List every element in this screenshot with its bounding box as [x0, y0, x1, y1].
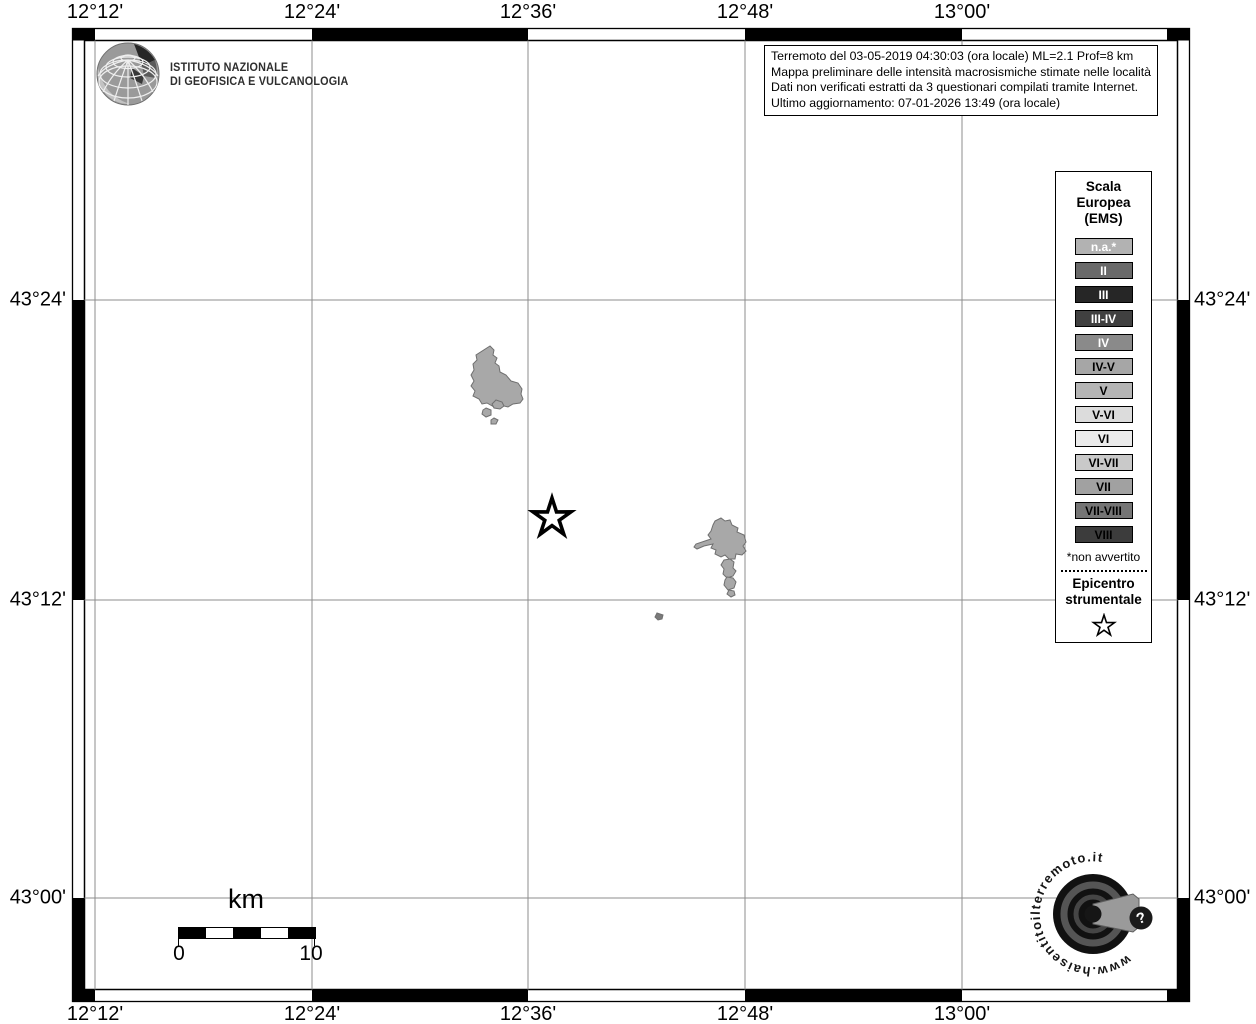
map-frame [73, 29, 1190, 1002]
top-axis-label: 12°36' [500, 1, 556, 24]
right-axis-label: 43°24' [1194, 289, 1250, 312]
left-axis-label: 43°00' [6, 887, 66, 910]
legend-title-line: Europea [1056, 195, 1151, 211]
legend-item-viii: VIII [1075, 526, 1133, 543]
macroseismic-map: 12°12' 12°24' 12°36' 12°48' 13°00' 12°12… [0, 0, 1256, 1024]
lake-shapes [471, 346, 746, 620]
ingv-logo: ISTITUTO NAZIONALE DI GEOFISICA E VULCAN… [96, 42, 368, 106]
top-axis-label: 12°48' [717, 1, 773, 24]
bottom-axis-label: 12°12' [67, 1003, 123, 1024]
scale-bar-segment [234, 928, 261, 938]
haisentito-logo-icon: ? www.haisentitoilterremoto.it [1023, 844, 1163, 984]
legend-separator [1061, 570, 1147, 572]
right-axis-label: 43°00' [1194, 887, 1250, 910]
legend-item-vi-vii: VI-VII [1075, 454, 1133, 471]
left-axis-label: 43°12' [6, 589, 66, 612]
bottom-axis-label: 12°24' [284, 1003, 340, 1024]
lake-shape-north [471, 346, 523, 407]
legend-title: Scala Europea (EMS) [1056, 179, 1151, 227]
bottom-axis-label: 13°00' [934, 1003, 990, 1024]
bottom-axis-label: 12°36' [500, 1003, 556, 1024]
legend-star-icon [1091, 613, 1117, 639]
info-line-mapdesc: Mappa preliminare delle intensità macros… [771, 65, 1151, 81]
legend-item-iv: IV [1075, 334, 1133, 351]
scale-bar-segment [261, 928, 288, 938]
scale-bar-end-label: 10 [299, 942, 322, 966]
legend-epicenter-line2: strumentale [1056, 592, 1151, 608]
ingv-logo-line1: ISTITUTO NAZIONALE [170, 60, 348, 74]
scale-bar-start-label: 0 [173, 942, 185, 966]
lake-islet [482, 408, 491, 417]
left-axis-label: 43°24' [6, 289, 66, 312]
earthquake-info-box: Terremoto del 03-05-2019 04:30:03 (ora l… [764, 45, 1158, 116]
scale-bar-segment [289, 928, 315, 938]
legend-panel: Scala Europea (EMS) n.a.* II III III-IV … [1055, 171, 1152, 643]
legend-item-vi: VI [1075, 430, 1133, 447]
legend-item-ii: II [1075, 262, 1133, 279]
legend-epicenter-line1: Epicentro [1056, 576, 1151, 592]
info-line-event: Terremoto del 03-05-2019 04:30:03 (ora l… [771, 49, 1151, 65]
right-axis-label: 43°12' [1194, 589, 1250, 612]
top-axis-label: 12°12' [67, 1, 123, 24]
scale-bar-segment [179, 928, 206, 938]
legend-item-iii: III [1075, 286, 1133, 303]
top-axis-label: 12°24' [284, 1, 340, 24]
lake-lobe [727, 590, 735, 597]
legend-item-na: n.a.* [1075, 238, 1133, 255]
lake-shape-south [694, 518, 746, 559]
legend-item-v: V [1075, 382, 1133, 399]
ingv-globe-icon [96, 42, 160, 106]
ingv-logo-text: ISTITUTO NAZIONALE DI GEOFISICA E VULCAN… [170, 60, 348, 88]
lake-lobe [721, 559, 736, 578]
map-frame-outer-border [73, 29, 1190, 1002]
legend-item-iii-iv: III-IV [1075, 310, 1133, 327]
legend-epicenter-label: Epicentro strumentale [1056, 576, 1151, 608]
legend-intensity-scale: n.a.* II III III-IV IV IV-V V V-VI VI VI… [1056, 238, 1151, 543]
legend-item-vii: VII [1075, 478, 1133, 495]
lake-islet [491, 418, 498, 424]
legend-item-v-vi: V-VI [1075, 406, 1133, 423]
legend-title-line: (EMS) [1056, 211, 1151, 227]
legend-item-iv-v: IV-V [1075, 358, 1133, 375]
legend-item-vii-viii: VII-VIII [1075, 502, 1133, 519]
bottom-axis-label: 12°48' [717, 1003, 773, 1024]
scale-bar [178, 927, 316, 939]
small-lake-dot [655, 613, 663, 620]
info-line-data: Dati non verificati estratti da 3 questi… [771, 80, 1151, 96]
legend-title-line: Scala [1056, 179, 1151, 195]
lake-lobe [724, 577, 736, 590]
map-frame-inner-border [85, 41, 1178, 990]
legend-footnote: *non avvertito [1056, 550, 1151, 564]
scale-bar-unit-label: km [204, 884, 288, 915]
epicenter-star-icon [533, 498, 571, 534]
ingv-logo-line2: DI GEOFISICA E VULCANOLOGIA [170, 74, 348, 88]
info-line-update: Ultimo aggiornamento: 07-01-2026 13:49 (… [771, 96, 1151, 112]
graticule-gridlines [85, 41, 1178, 990]
watermark-logo: ? www.haisentitoilterremoto.it [1023, 844, 1163, 989]
scale-bar-segment [206, 928, 233, 938]
top-axis-label: 13°00' [934, 1, 990, 24]
